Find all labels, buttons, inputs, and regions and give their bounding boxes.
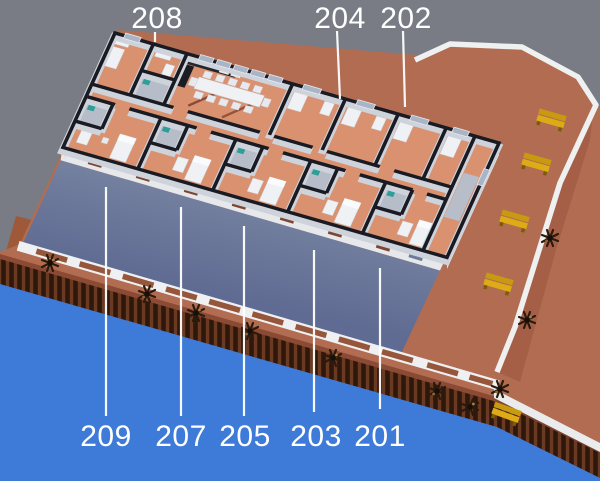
room-label-201: 201 <box>354 420 406 453</box>
room-label-204: 204 <box>314 2 366 35</box>
screenshot-root: 208 204 202 209 207 205 203 201 <box>0 0 600 481</box>
room-label-208: 208 <box>131 2 183 35</box>
room-label-205: 205 <box>219 420 271 453</box>
room-label-203: 203 <box>290 420 342 453</box>
floorplan-3d-view: 208 204 202 209 207 205 203 201 <box>0 0 600 481</box>
room-label-202: 202 <box>380 2 432 35</box>
room-label-209: 209 <box>80 420 132 453</box>
room-label-207: 207 <box>155 420 207 453</box>
